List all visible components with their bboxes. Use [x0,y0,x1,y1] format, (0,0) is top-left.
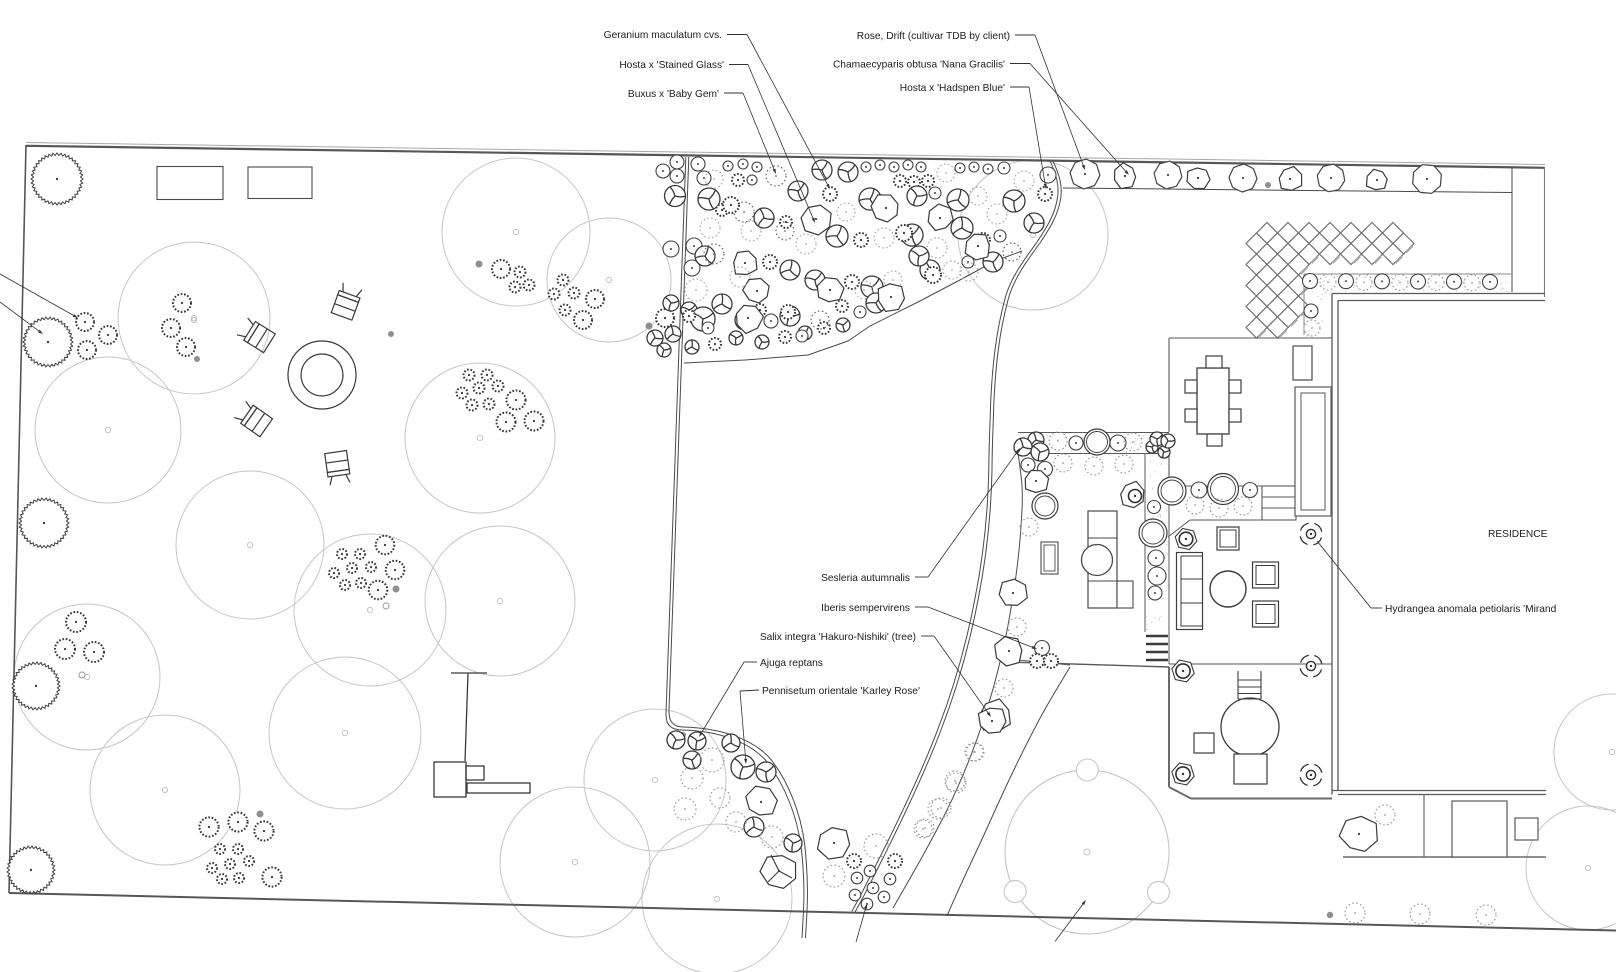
svg-text:Hosta x 'Stained Glass': Hosta x 'Stained Glass' [619,60,724,71]
svg-text:Iberis sempervirens: Iberis sempervirens [821,603,910,614]
svg-text:Buxus x 'Baby Gem': Buxus x 'Baby Gem' [628,89,719,100]
svg-text:RESIDENCE: RESIDENCE [1488,529,1548,540]
svg-text:Geranium maculatum cvs.: Geranium maculatum cvs. [604,30,722,41]
svg-text:Salix integra 'Hakuro-Nishiki': Salix integra 'Hakuro-Nishiki' (tree) [760,632,916,643]
svg-text:Hydrangea anomala petiolaris ': Hydrangea anomala petiolaris 'Mirand [1385,604,1557,615]
svg-text:Hosta x 'Hadspen Blue': Hosta x 'Hadspen Blue' [900,83,1005,94]
svg-text:Sesleria autumnalis: Sesleria autumnalis [821,573,910,584]
svg-text:Chamaecyparis obtusa 'Nana Gra: Chamaecyparis obtusa 'Nana Gracilis' [833,60,1005,71]
svg-text:Ajuga reptans: Ajuga reptans [760,658,823,669]
svg-text:Rose, Drift (cultivar TDB by c: Rose, Drift (cultivar TDB by client) [857,31,1010,42]
svg-text:Pennisetum orientale 'Karley R: Pennisetum orientale 'Karley Rose' [762,686,920,697]
